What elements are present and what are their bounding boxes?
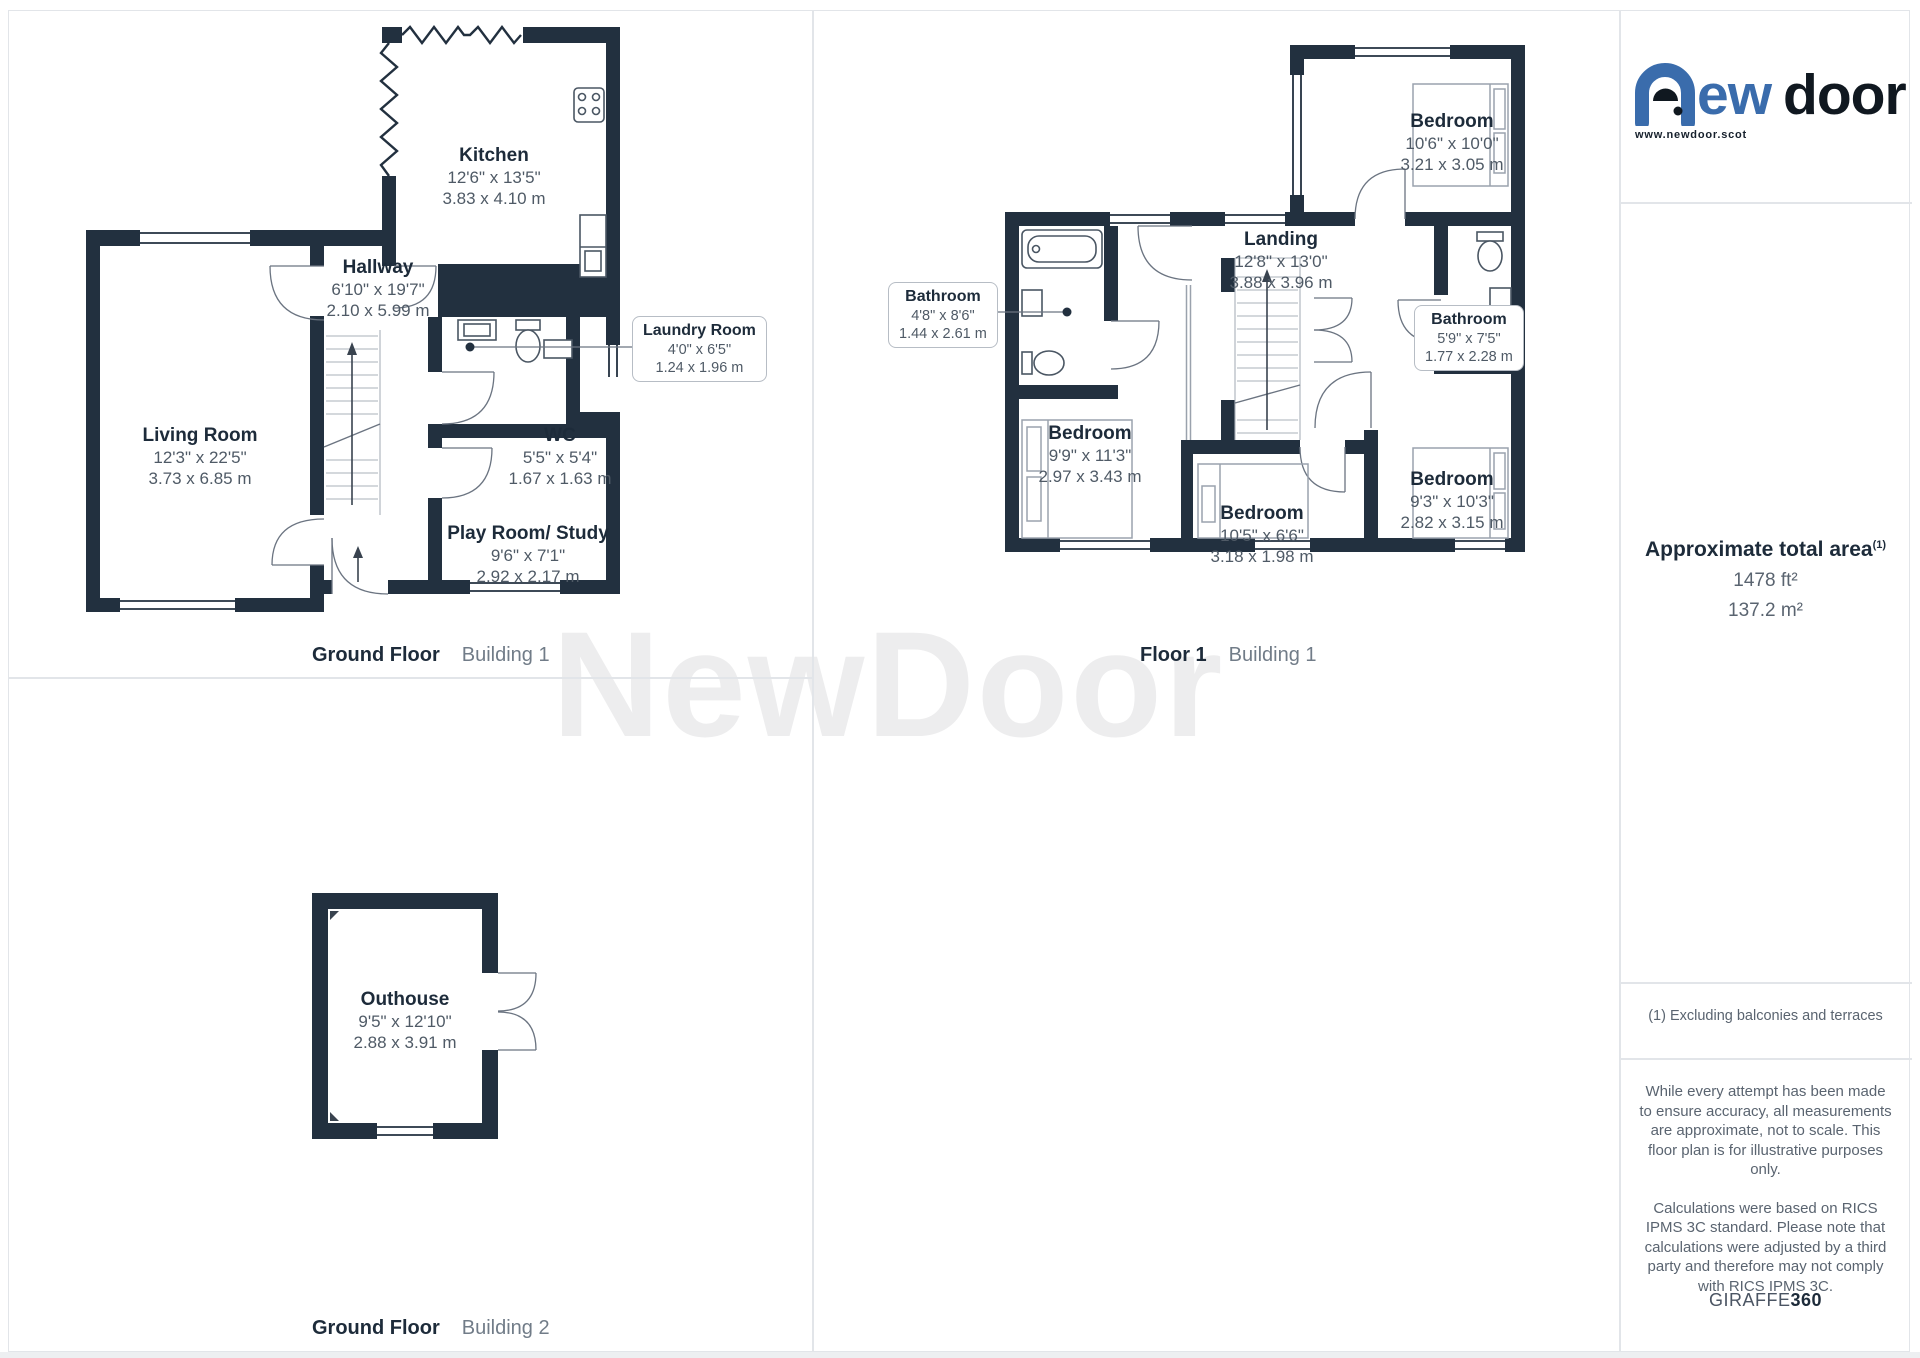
window-living-top [140,230,250,246]
hob-icon [574,88,604,122]
logo-text-blue: ew [1697,64,1771,126]
window-living-bottom [120,598,235,612]
bath-icon [1022,230,1102,268]
window-f1-top2 [1225,212,1285,226]
floorplan-canvas [0,0,1920,1358]
wc-basin-icon [544,340,572,358]
label-laundry-callout: Laundry Room 4'0" x 6'5" 1.24 x 1.96 m [632,316,767,382]
label-hallway: Hallway 6'10" x 19'7" 2.10 x 5.99 m [326,256,429,321]
total-area-title: Approximate total area(1) [1619,538,1912,562]
window-outhouse [377,1123,433,1139]
caption-floor1-b1: Floor 1Building 1 [1140,644,1317,667]
total-area-block: Approximate total area(1) 1478 ft² 137.2… [1619,538,1912,622]
window-f1-bottom3 [1455,538,1505,552]
window-laundry [606,345,620,377]
footnote-marker: (1) [1873,539,1886,551]
wc-toilet-icon [516,320,540,362]
label-kitchen: Kitchen 12'6" x 13'5" 3.83 x 4.10 m [442,144,545,209]
area-footnote: (1) Excluding balconies and terraces [1619,1008,1912,1024]
newdoor-arch-icon [1633,58,1697,126]
entry-arrow [353,546,363,582]
label-living-room: Living Room 12'3" x 22'5" 3.73 x 6.85 m [142,424,257,489]
kitchen-sink-icon [580,215,606,277]
caption-ground-floor-b1: Ground FloorBuilding 1 [312,644,550,667]
label-landing: Landing 12'8" x 13'0" 3.88 x 3.96 m [1229,228,1332,293]
label-outhouse: Outhouse 9'5" x 12'10" 2.88 x 3.91 m [353,988,456,1053]
giraffe360-logo: GIRAFFE360 [1619,1290,1912,1311]
logo-text-black: door [1783,64,1906,126]
label-bathroom2-callout: Bathroom 5'9" x 7'5" 1.77 x 2.28 m [1414,305,1524,371]
label-bedroom-mid: Bedroom 10'5" x 6'6" 3.18 x 1.98 m [1210,502,1313,567]
logo-website: www.newdoor.scot [1635,129,1906,141]
disclaimer-paragraph-2: Calculations were based on RICS IPMS 3C … [1639,1199,1892,1297]
bathroom2-toilet-icon [1477,232,1503,271]
disclaimer-block: While every attempt has been made to ens… [1639,1082,1892,1315]
total-area-m: 137.2 m² [1619,600,1912,622]
bathroom1-toilet-icon [1022,351,1064,375]
total-area-ft: 1478 ft² [1619,570,1912,592]
label-bedroom-left: Bedroom 9'9" x 11'3" 2.97 x 3.43 m [1038,422,1141,487]
newdoor-logo: ew door www.newdoor.scot [1633,58,1906,141]
label-bedroom-right: Bedroom 9'3" x 10'3" 2.82 x 3.15 m [1400,468,1503,533]
wc-sink-icon [458,320,496,340]
window-wing-left [1290,75,1304,195]
stairs-ground-floor [324,330,380,515]
window-f1-bottom1 [1060,538,1150,552]
label-bathroom1-callout: Bathroom 4'8" x 8'6" 1.44 x 2.61 m [888,282,998,348]
disclaimer-paragraph-1: While every attempt has been made to ens… [1639,1082,1892,1180]
label-wc: WC 5'5" x 5'4" 1.67 x 1.63 m [508,424,611,489]
label-bedroom-top: Bedroom 10'6" x 10'0" 3.21 x 3.05 m [1400,110,1503,175]
label-playroom: Play Room/ Study 9'6" x 7'1" 2.92 x 2.17… [447,522,609,587]
caption-ground-floor-b2: Ground FloorBuilding 2 [312,1317,550,1340]
window-f1-top1 [1110,212,1170,226]
outhouse-double-door [498,973,536,1050]
window-wing-top [1355,45,1450,59]
